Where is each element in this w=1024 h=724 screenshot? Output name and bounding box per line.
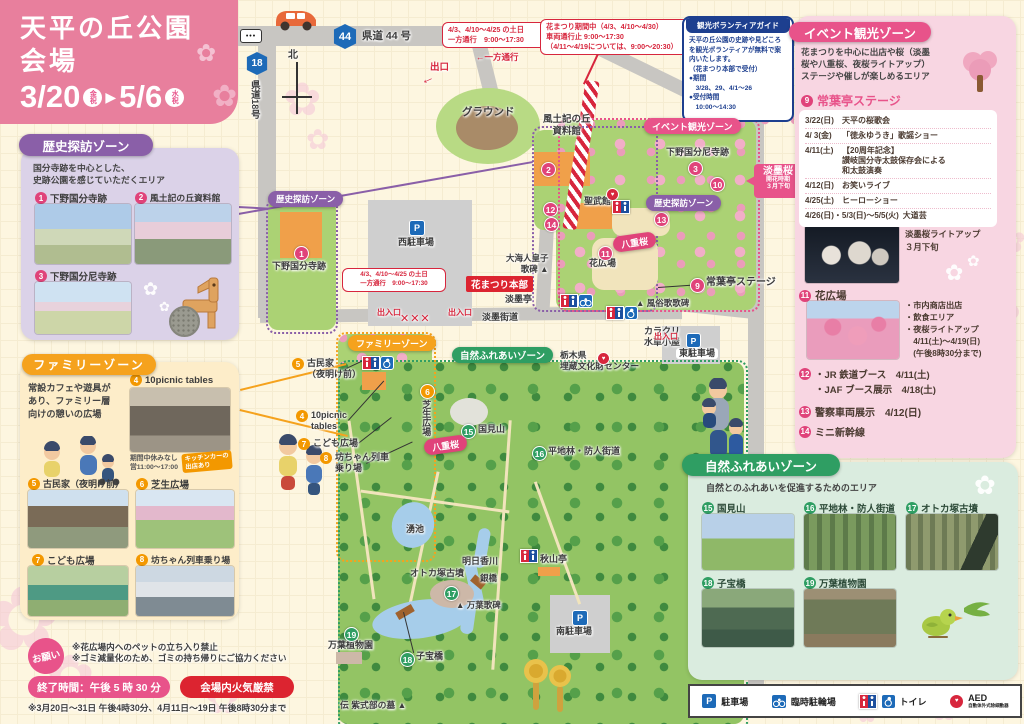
sakura-decoration xyxy=(143,280,158,298)
marker-2: 2 xyxy=(135,192,147,204)
map-marker-19: 19 xyxy=(344,627,359,642)
nature-item-text: 子宝橋 xyxy=(717,576,746,590)
history-item-text: 下野国分寺跡 xyxy=(50,191,107,205)
marker-8: 8 xyxy=(136,554,148,566)
history-item-label: 3 下野国分尼寺跡 xyxy=(35,269,117,283)
schedule-date: 4/ 3(金) xyxy=(805,131,838,141)
barrier-label: ✕✕✕ xyxy=(400,313,431,327)
map-marker-18: 18 xyxy=(400,652,415,667)
map-marker-6: 6 xyxy=(420,384,435,399)
map-marker-16: 16 xyxy=(532,446,547,461)
flower-plaza-notes: ・市内商店出店 ・飲食エリア ・夜桜ライトアップ 4/11(土)～4/19(日)… xyxy=(905,300,981,359)
shinkansen-text: ミニ新幹線 xyxy=(815,424,865,439)
kodomo-callout: 7 こども広場 xyxy=(298,438,358,450)
compass-needle xyxy=(296,62,298,114)
schedule-date: 4/25(土) xyxy=(805,196,838,206)
schedule-row: 4/11(土)【20周年記念】 讃岐国分寺太鼓保存会による 和太鼓演奏 xyxy=(805,143,991,178)
ground-label: グラウンド xyxy=(462,106,515,119)
compass-crossbar xyxy=(282,96,312,98)
volunteer-guide-body: 天平の丘公園の史跡や見どころを観光ボランティアが無料で案内いたします。 （花まつ… xyxy=(684,33,792,115)
nature-zone-map-pill: 自然ふれあいゾーン xyxy=(452,347,553,363)
date-end-badge: 水祝 xyxy=(165,88,184,107)
history-item-label: 1 下野国分寺跡 xyxy=(35,191,107,205)
kodomo-callout-label: こども広場 xyxy=(313,438,358,449)
photo-bochan-train xyxy=(136,566,234,616)
photo-manyo-garden xyxy=(804,589,896,647)
end-time-box: 終了時間：午後 5 時 30 分 xyxy=(28,676,170,698)
kunimi-mound xyxy=(450,398,488,426)
history-zone-map-pill: 歴史探訪ゾーン xyxy=(646,195,721,211)
wheelchair-icon xyxy=(380,356,394,370)
parking-icon: P xyxy=(686,333,701,348)
marker-12: 12 xyxy=(799,368,811,380)
legend-aed: AED 自動体外式除細動器 xyxy=(949,694,1009,709)
stage-heading: 9 常葉亭ステージ xyxy=(801,92,901,109)
nature-item-text: 平地林・防人街道 xyxy=(819,501,895,515)
shibafu-label: 芝生広場 xyxy=(420,400,431,436)
marker-11: 11 xyxy=(799,290,811,302)
picnic-callout: 4 10picnic tables xyxy=(296,410,347,433)
map-marker-3: 3 xyxy=(688,161,703,176)
photo-kokubunji xyxy=(35,204,131,264)
date-arrow-icon: ▶ xyxy=(105,89,116,106)
usuzumi-callout-pointer xyxy=(746,176,755,186)
nature-zone-description: 自然とのふれあいを促進するためのエリア xyxy=(706,482,877,495)
sakura-decoration xyxy=(306,126,329,154)
schedule-row: 4/26(日)・5/3(日)～5/5(火)大道芸 xyxy=(805,208,991,223)
gate-label: 出入口 xyxy=(654,332,678,342)
aed-icon xyxy=(949,694,964,709)
east-parking-label: 東駐車場 xyxy=(676,348,718,359)
marker-19: 19 xyxy=(804,577,816,589)
photo-otoka xyxy=(906,514,998,570)
schedule-date: 4/12(日) xyxy=(805,181,838,191)
schedule-date: 3/22(日) xyxy=(805,116,838,126)
heichirin-label: 平地林・防人街道 xyxy=(548,446,620,457)
legend-toilet-label: トイレ xyxy=(900,695,927,708)
kaido-label: 淡墨街道 xyxy=(482,312,518,323)
akiyamatei-label: 秋山亭 xyxy=(540,554,567,565)
photo-kunimi xyxy=(702,514,794,570)
kodakara-label: 子宝橋 xyxy=(416,651,443,662)
ginbashi-label: 銀橋 xyxy=(480,573,497,584)
map-marker-1: 1 xyxy=(294,246,309,261)
photo-fudoki-museum xyxy=(135,204,231,264)
marker-8: 8 xyxy=(320,452,332,464)
picnic-hours-caption: 期間中休みなし 営11:00～17:00 xyxy=(130,454,178,472)
otoka-label: オトカ塚古墳 xyxy=(410,568,464,579)
history-zone-panel: 歴史探訪ゾーン 国分寺跡を中心とした、 史跡公園を感じていただくエリア 1 下野… xyxy=(21,148,239,340)
manyokahi-label: ▲ 万葉歌碑 xyxy=(456,600,501,611)
date-range: 3/20 金祝 ▶ 5/6 水祝 xyxy=(20,79,238,115)
nature-item-text: 国見山 xyxy=(717,501,746,515)
kominka-callout: 5 古民家 （夜明け前） xyxy=(292,358,361,381)
nijidera-label: 下野国分尼寺跡 xyxy=(666,147,729,158)
map-marker-9: 9 xyxy=(690,278,705,293)
schedule-date: 4/26(日)・5/3(日)～5/5(火) xyxy=(805,211,899,221)
map-marker-14: 14 xyxy=(544,217,559,232)
marker-3: 3 xyxy=(35,270,47,282)
crossing-icon xyxy=(240,29,262,43)
murasaki-label: 伝 紫式部の墓 ▲ xyxy=(340,700,406,711)
sakura-decoration xyxy=(212,82,237,112)
map-marker-17: 17 xyxy=(444,586,459,601)
legend-toilet: トイレ xyxy=(859,694,927,709)
map-marker-11: 11 xyxy=(598,246,613,261)
family-item-label: 7 こども広場 xyxy=(32,553,95,567)
marker-18: 18 xyxy=(702,577,714,589)
honbu-label: 花まつり本部 xyxy=(466,276,533,292)
booths-text: ・JR 鉄道ブース 4/11(土) ・JAF ブース展示 4/18(土) xyxy=(815,368,936,398)
oneway-arrow-label: ←一方通行 xyxy=(476,52,519,63)
marker-6: 6 xyxy=(136,478,148,490)
sakura-decoration xyxy=(945,262,963,284)
schedule-row: 4/12(日)お笑いライブ xyxy=(805,178,991,193)
schedule-event: 「徳永ゆうき」歌謡ショー xyxy=(842,131,938,141)
photo-kodakara xyxy=(702,589,794,647)
booths-heading: 12 ・JR 鉄道ブース 4/11(土) ・JAF ブース展示 4/18(土) xyxy=(799,368,936,398)
gate-label: 出入口 xyxy=(377,308,401,318)
south-parking-label: 南駐車場 xyxy=(556,626,592,637)
request-lines: ※花広場内へのペットの立ち入り禁止 ※ゴミ減量化のため、ゴミの持ち帰りにご協力く… xyxy=(72,642,286,663)
sakura-decoration xyxy=(974,472,996,498)
toilet-icon xyxy=(859,694,877,709)
schedule-date: 4/11(土) xyxy=(805,146,838,156)
family-item-label: 8 坊ちゃん列車乗り場 xyxy=(136,553,230,566)
marker-4: 4 xyxy=(296,410,308,422)
marker-17: 17 xyxy=(906,502,918,514)
kominka-callout-label: 古民家 （夜明け前） xyxy=(307,358,361,381)
police-heading: 13 警察車両展示 4/12(日) xyxy=(799,404,921,419)
stage-label: 常葉亭ステージ xyxy=(706,277,776,290)
date-end: 5/6 xyxy=(119,79,162,115)
history-item-label: 2 風土記の丘資料館 xyxy=(135,191,220,204)
fudoki-label: 風土記の丘 資料館 xyxy=(543,114,591,138)
marker-4: 4 xyxy=(130,374,142,386)
event-zone-description: 花まつりを中心に出店や桜（淡墨 桜や八重桜、夜桜ライトアップ） ステージや催しが… xyxy=(801,46,930,82)
wakiike-label: 湧池 xyxy=(406,524,424,535)
marker-9: 9 xyxy=(801,95,813,107)
schedule-row: 4/ 3(金)「徳永ゆうき」歌謡ショー xyxy=(805,128,991,143)
history-zone-panel-title: 歴史探訪ゾーン xyxy=(19,134,153,156)
family-zone-panel-title: ファミリーゾーン xyxy=(22,354,156,375)
legend-bicycle-label: 臨時駐輪場 xyxy=(791,695,836,708)
title-block: 天平の丘公園 会場 3/20 金祝 ▶ 5/6 水祝 xyxy=(0,0,238,124)
marker-5: 5 xyxy=(292,358,304,370)
route-44-label: 県道 44 号 xyxy=(362,30,411,43)
toilet-icon xyxy=(560,294,578,308)
park-map-poster: 44 県道 44 号 18 県道18号 北 出口 ← ←一方通行 4/3、4/1… xyxy=(0,0,1024,724)
aed-icon xyxy=(597,352,610,365)
marker-13: 13 xyxy=(799,406,811,418)
photo-kominka xyxy=(28,490,128,548)
family-item-text: 芝生広場 xyxy=(151,477,189,491)
bochan-callout: 8 坊ちゃん列車 乗り場 xyxy=(320,452,389,475)
car-illustration xyxy=(272,4,320,32)
toilet-icon xyxy=(520,549,538,563)
family-item-text: 坊ちゃん列車乗り場 xyxy=(151,553,230,566)
west-parking-label: 西駐車場 xyxy=(398,237,434,248)
usuzumi-note: 淡墨桜ライトアップ ３月下旬 xyxy=(905,228,980,253)
date-start-badge: 金祝 xyxy=(83,88,102,107)
toilet-icon xyxy=(612,200,630,214)
usuzumitei-label: 淡墨亭 xyxy=(505,294,532,305)
compass-north-label: 北 xyxy=(288,50,298,63)
roof-tile-illustration xyxy=(169,306,200,337)
sakura-decoration xyxy=(967,254,980,269)
event-zone-panel: イベント観光ゾーン 花まつりを中心に出店や桜（淡墨 桜や八重桜、夜桜ライトアップ… xyxy=(795,16,1016,458)
kitchen-car-tag: キッチンカーの 出店あり xyxy=(181,450,233,473)
sakura-decoration xyxy=(283,76,322,122)
family-item-label: 5 古民家（夜明け前） xyxy=(28,477,124,490)
marker-1: 1 xyxy=(35,192,47,204)
legend-parking-label: 駐車場 xyxy=(721,695,748,708)
wheelchair-icon xyxy=(881,694,896,709)
schedule-row: 4/25(土)ヒーローショー xyxy=(805,193,991,208)
nature-zone-panel-title: 自然ふれあいゾーン xyxy=(682,454,840,476)
footnote: ※3月20日～31日 午後4時30分、4月11日～19日 午後8時30分まで xyxy=(28,703,286,714)
map-marker-2: 2 xyxy=(541,162,556,177)
nature-item-label: 16 平地林・防人街道 xyxy=(804,501,895,515)
exit-label: 出口 xyxy=(430,62,449,74)
map-marker-10: 10 xyxy=(710,177,725,192)
fuzoku-kahi-label: ▲ 風俗歌歌碑 xyxy=(636,298,689,309)
photo-nijidera xyxy=(35,282,131,334)
nature-item-text: オトカ塚古墳 xyxy=(921,501,978,515)
history-zone-map-pill-west: 歴史探訪ゾーン xyxy=(268,191,343,207)
photo-usuzumi-night xyxy=(805,225,899,283)
marker-14: 14 xyxy=(799,426,811,438)
event-zone-panel-title: イベント観光ゾーン xyxy=(789,22,931,42)
family-zone-description: 常設カフェや遊具が あり、ファミリー層 向けの憩いの広場 xyxy=(28,382,111,421)
golden-flowers-illustration xyxy=(522,658,574,718)
schedule-event: 【20周年記念】 讃岐国分寺太鼓保存会による 和太鼓演奏 xyxy=(842,146,946,176)
family-item-label: 6 芝生広場 xyxy=(136,477,189,491)
gate-label: 出入口 xyxy=(448,308,472,318)
toilet-icon xyxy=(606,306,624,320)
sakura-decoration xyxy=(196,42,216,66)
nature-item-label: 19 万葉植物園 xyxy=(804,576,867,590)
stage-heading-text: 常葉亭ステージ xyxy=(817,92,901,109)
map-marker-13: 13 xyxy=(654,212,669,227)
parking-icon: P xyxy=(572,610,588,626)
marker-5: 5 xyxy=(28,478,40,490)
marker-7: 7 xyxy=(298,438,310,450)
route-18-label: 県道18号 xyxy=(248,80,260,119)
photo-kodomo xyxy=(28,566,128,616)
history-item-text: 風土記の丘資料館 xyxy=(150,191,220,204)
nature-item-label: 18 子宝橋 xyxy=(702,576,746,590)
picnic-callout-label: 10picnic tables xyxy=(311,410,347,433)
bird-illustration xyxy=(916,598,996,642)
nature-item-label: 17 オトカ塚古墳 xyxy=(906,501,978,515)
family-item-text: 古民家（夜明け前） xyxy=(43,477,124,490)
nature-item-label: 15 国見山 xyxy=(702,501,746,515)
marker-15: 15 xyxy=(702,502,714,514)
oama-kahi-label: 大海人皇子 歌碑 ▲ xyxy=(506,253,549,274)
legend-aed-sublabel: 自動体外式除細動器 xyxy=(968,704,1009,709)
wheelchair-icon xyxy=(624,306,638,320)
nature-item-text: 万葉植物園 xyxy=(819,576,867,590)
schedule-event: 大道芸 xyxy=(903,211,927,221)
police-text: 警察車両展示 4/12(日) xyxy=(815,404,921,419)
callout-line xyxy=(583,51,600,84)
closure-map-box: 4/3、4/10～4/25 の土日 一方通行 9:00～17:30 xyxy=(342,268,446,292)
date-start: 3/20 xyxy=(20,79,80,115)
schedule-event: 天平の桜歌会 xyxy=(842,116,890,126)
history-item-text: 下野国分尼寺跡 xyxy=(50,269,117,283)
bochan-callout-label: 坊ちゃん列車 乗り場 xyxy=(335,452,389,475)
photo-picnic-tables xyxy=(130,388,230,452)
schedule-event: ヒーローショー xyxy=(842,196,898,206)
map-legend: P 駐車場 臨時駐輪場 トイレ AED 自動体外式除細動器 xyxy=(688,684,1022,718)
fire-ban-box: 会場内火気厳禁 xyxy=(180,676,294,698)
nature-zone-panel: 自然ふれあいゾーン 自然とのふれあいを促進するためのエリア 15 国見山 16 … xyxy=(688,462,1018,680)
family-zone-panel: ファミリーゾーン 常設カフェや遊具が あり、ファミリー層 向けの憩いの広場 4 … xyxy=(20,362,239,620)
toilet-icon xyxy=(362,356,380,370)
shinkansen-heading: 14 ミニ新幹線 xyxy=(799,424,865,439)
photo-shibafu xyxy=(136,490,234,548)
schedule-row: 3/22(日)天平の桜歌会 xyxy=(805,114,991,128)
bicycle-parking-icon xyxy=(771,694,787,709)
cherry-tree-illustration xyxy=(959,48,1001,94)
manyo-garden-building xyxy=(336,652,362,664)
photo-heichirin xyxy=(804,514,896,570)
schedule-event: お笑いライブ xyxy=(842,181,890,191)
kunimi-label: 国見山 xyxy=(478,424,505,435)
legend-bicycle: 臨時駐輪場 xyxy=(771,694,836,709)
stage-schedule: 3/22(日)天平の桜歌会 4/ 3(金)「徳永ゆうき」歌謡ショー 4/11(土… xyxy=(799,110,997,227)
history-zone-description: 国分寺跡を中心とした、 史跡公園を感じていただくエリア xyxy=(33,162,165,187)
event-zone-map-pill: イベント観光ゾーン xyxy=(644,118,741,134)
sakura-decoration xyxy=(159,300,170,313)
bicycle-parking-icon xyxy=(578,294,593,308)
legend-parking: P 駐車場 xyxy=(701,693,748,709)
asukagawa-label: 明日香川 xyxy=(462,556,498,567)
family-item-text: 10picnic tables xyxy=(145,375,213,386)
akiyamatei-building xyxy=(538,567,560,576)
family-item-label: 4 10picnic tables xyxy=(130,374,213,386)
family-zone-map-pill: ファミリーゾーン xyxy=(348,335,436,351)
family-item-text: こども広場 xyxy=(47,553,95,567)
photo-flower-plaza xyxy=(807,301,899,359)
marker-7: 7 xyxy=(32,554,44,566)
marker-16: 16 xyxy=(804,502,816,514)
parking-icon: P xyxy=(409,220,425,236)
map-marker-12: 12 xyxy=(543,202,558,217)
parking-icon: P xyxy=(701,693,717,709)
closure-notice-box: 花まつり期間中（4/3、4/10～4/30） 車両通行止 9:00～17:30 … xyxy=(540,19,698,55)
volunteer-guide-title: 観光ボランティアガイド xyxy=(686,18,790,33)
kokubunji-label: 下野国分寺跡 xyxy=(272,261,326,272)
volunteer-guide-box: 観光ボランティアガイド 天平の丘公園の史跡や見どころを観光ボランティアが無料で案… xyxy=(682,16,794,122)
